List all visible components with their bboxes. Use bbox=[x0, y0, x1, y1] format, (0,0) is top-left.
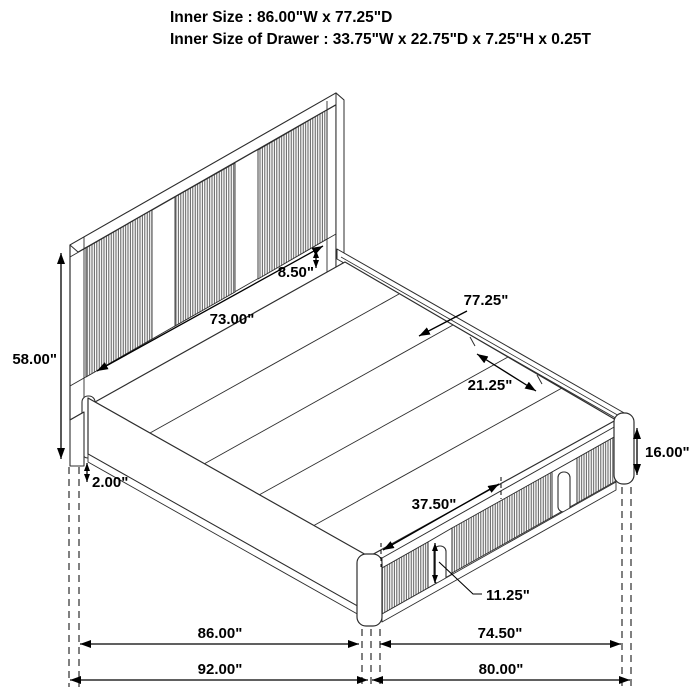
bed-dimension-diagram-page: Inner Size : 86.00"W x 77.25"D Inner Siz… bbox=[0, 0, 700, 700]
dim-label-footboard-height: 16.00" bbox=[645, 444, 690, 461]
drawer-handle bbox=[558, 472, 570, 512]
dim-label-headboard-height: 58.00" bbox=[12, 351, 57, 368]
dim-label-platform-depth: 77.25" bbox=[464, 292, 509, 309]
dim-label-headboard-gap: 8.50" bbox=[278, 264, 314, 281]
dim-label-foot-inner-width: 74.50" bbox=[478, 625, 523, 642]
dim-label-outer-width: 80.00" bbox=[479, 661, 524, 678]
drawer-handle bbox=[434, 546, 446, 584]
front-leg bbox=[357, 554, 382, 626]
headboard-leg bbox=[70, 412, 84, 466]
dim-label-drawer-front-height: 11.25" bbox=[486, 587, 530, 604]
headboard-side-edge bbox=[336, 93, 344, 268]
header-line2: Inner Size of Drawer : 33.75"W x 22.75"D… bbox=[170, 31, 591, 48]
dim-label-drawer-front-width: 37.50" bbox=[412, 496, 457, 513]
dim-label-inner-width: 86.00" bbox=[198, 625, 243, 642]
dim-label-rail-segment: 21.25" bbox=[468, 377, 513, 394]
right-corner-post bbox=[614, 413, 634, 484]
dim-label-base-clearance: 2.00" bbox=[92, 474, 128, 491]
dim-label-headboard-panel-width: 73.00" bbox=[210, 311, 255, 328]
header-line1: Inner Size : 86.00"W x 77.25"D bbox=[170, 9, 392, 26]
bed-structure bbox=[70, 93, 634, 626]
dim-label-outer-length: 92.00" bbox=[198, 661, 243, 678]
bed-dimension-diagram: Inner Size : 86.00"W x 77.25"D Inner Siz… bbox=[0, 0, 700, 700]
